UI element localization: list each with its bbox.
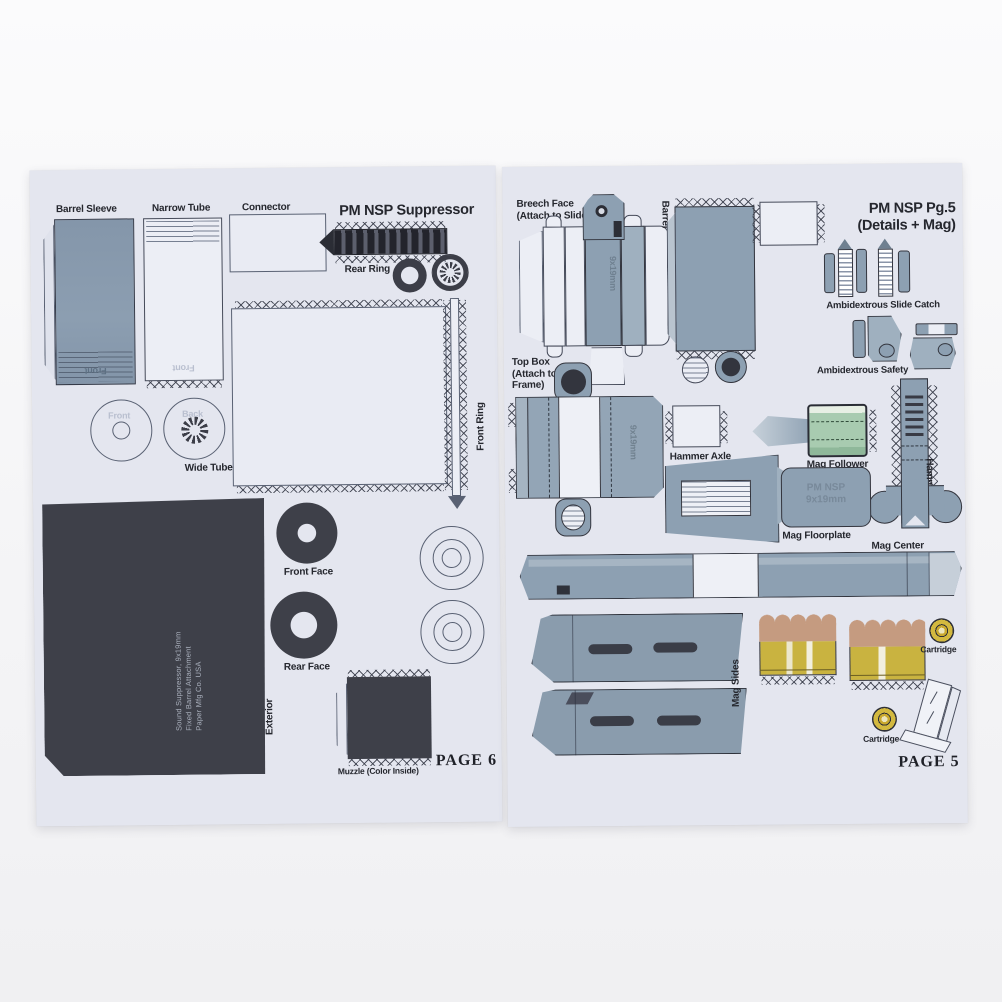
wide-tube-piece: [231, 306, 448, 486]
bullet-strip-a: [759, 611, 837, 690]
breech-slide-silhouette: [582, 194, 624, 240]
hammer-axle-piece: [672, 405, 720, 447]
safety-a-knob: [879, 344, 895, 358]
follower-dashdot-1: [811, 421, 863, 422]
catch-b-right: [898, 250, 910, 292]
top-box-dashdot-1: [548, 398, 550, 498]
mag-center-strip: [520, 551, 962, 600]
strip-b-zigzag: [852, 681, 924, 690]
follower-dashdot-2: [812, 439, 864, 440]
mag-side-piece-b: [532, 688, 748, 756]
floorplate-trapezoid: [665, 455, 780, 544]
muzzle-flap: [336, 683, 348, 755]
cartridge-b-label: Cartridge: [863, 735, 899, 745]
floorplate-marking-line1: PM NSP: [782, 482, 870, 495]
washer-outline-1: [419, 526, 484, 591]
page6-number: PAGE 6: [436, 752, 497, 771]
exterior-text-block: Sound Suppressor, 9x19mm Fixed Barrel At…: [172, 531, 204, 731]
breech-tab-t1: [546, 216, 562, 228]
right-sheet-page5: Breech Face (Attach to Slide) 9x19mm Bar…: [502, 163, 968, 827]
top-box-label-line1: Top Box: [512, 357, 557, 369]
safety-label: Ambidextrous Safety: [817, 365, 908, 377]
rear-ring-gear: [431, 254, 468, 291]
front-cap-circle: Front: [90, 399, 153, 462]
barrel-sleeve-flap: [43, 224, 56, 380]
mag-center-end-face: [930, 553, 961, 595]
mag-side-piece-a: [531, 613, 744, 683]
narrow-tube-label: Narrow Tube: [152, 203, 210, 215]
breech-panel-2: [565, 226, 586, 346]
dark-ring-circle: [715, 351, 747, 383]
tube-front-marking: Front: [173, 363, 195, 374]
mag-follower-arrow: [752, 414, 814, 448]
breech-slide-ring: [595, 205, 607, 217]
catch-a-right: [856, 249, 867, 293]
tube-wave-texture: [146, 220, 219, 245]
slide-catch-piece-b: [874, 244, 918, 299]
rear-face-label: Rear Face: [284, 661, 330, 673]
floorplate-wavy-window: [681, 480, 751, 517]
cartridge-base-b: [872, 707, 897, 732]
breech-caliber-marking: 9x19mm: [608, 256, 619, 291]
hammer-dashdot-1: [902, 445, 928, 446]
strip-a-tips: [759, 611, 836, 642]
barrel-sleeve-label: Barrel Sleeve: [56, 204, 117, 216]
top-box-label-line3: Frame): [512, 380, 557, 392]
mag-center-wavy-band: [693, 554, 759, 598]
front-ring-zigzag-right: [459, 300, 468, 490]
mag-sides-label: Mag Sides: [730, 659, 742, 707]
top-box-bottom-tab: [555, 498, 591, 536]
rear-ring-strip-arrow: [319, 229, 333, 255]
front-cap-label: Front: [108, 410, 130, 421]
top-box-bottom-oval: [561, 504, 585, 530]
side-b-slot-2: [657, 715, 701, 725]
cartridge-base-a: [929, 618, 954, 643]
page6-title: PM NSP Suppressor: [314, 202, 474, 220]
washer2-hole: [442, 622, 462, 642]
top-box-zz-b: [509, 469, 516, 493]
mag-center-label: Mag Center: [871, 540, 924, 552]
hammer-serrations: [905, 395, 923, 437]
side-a-slot-1: [588, 644, 632, 654]
hammer-axle-zz-right: [720, 411, 727, 443]
side-b-tab: [566, 692, 594, 704]
strip-a-zigzag: [762, 676, 835, 685]
narrow-tube-zigzag: [147, 380, 222, 388]
safety-b-top: [916, 323, 958, 335]
muzzle-piece: [347, 676, 432, 759]
breech-slide-notch: [614, 221, 622, 237]
rear-ring-gear-hole: [446, 268, 455, 277]
mag-follower-piece: [807, 404, 867, 458]
slide-catch-piece-a: [824, 245, 870, 300]
catch-b-coil: [878, 249, 893, 297]
bullet-strip-b: [849, 616, 926, 695]
safety-piece-a: [852, 316, 904, 366]
rear-ring-plain: [393, 258, 427, 292]
back-cap-gear-hole: [189, 425, 200, 436]
breech-tab-t2: [624, 215, 642, 227]
front-cap-hole: [112, 421, 130, 439]
back-cap-circle: Back: [163, 397, 226, 460]
front-face-piece: [276, 502, 338, 564]
safety-a-bar: [852, 320, 865, 358]
top-box-left-flap: [516, 398, 529, 498]
connector-piece: [229, 213, 327, 272]
rear-face-piece: [270, 591, 338, 659]
barrel-sleeve-piece: Front: [54, 218, 136, 385]
rear-ring-strip: [333, 228, 447, 255]
mag-follower-zz: [869, 410, 876, 452]
catch-a-coil: [838, 249, 853, 297]
top-box-label: Top Box (Attach to Frame): [512, 357, 557, 392]
washer1-hole: [442, 548, 462, 568]
top-box-label-line2: (Attach to: [512, 368, 557, 380]
safety-piece-b: [908, 323, 962, 371]
catch-b-tip: [878, 239, 892, 249]
top-box-zz-a: [508, 403, 515, 427]
top-box-body: 9x19mm: [515, 396, 664, 499]
cartridge-a-label: Cartridge: [920, 645, 956, 655]
barrel-piece: [674, 206, 755, 352]
exterior-piece: Sound Suppressor, 9x19mm Fixed Barrel At…: [42, 498, 267, 776]
strip-b-tips: [849, 616, 925, 647]
top-box-attach-circle: [561, 369, 586, 394]
wide-tube-zigzag-bottom: [237, 484, 444, 493]
page5-title-line2: (Details + Mag): [796, 217, 956, 234]
narrow-tube-piece: Front: [143, 217, 224, 381]
mag-floorplate-label: Mag Floorplate: [782, 530, 850, 542]
breech-tab-b2: [625, 345, 643, 357]
breech-panel-4: [621, 226, 646, 346]
page5-number: PAGE 5: [898, 753, 959, 772]
rear-ring-label: Rear Ring: [345, 264, 391, 276]
catch-a-tip: [838, 239, 852, 249]
top-box-caliber-marking: 9x19mm: [628, 425, 639, 460]
exterior-label: Exterior: [264, 699, 276, 735]
hammer-spur-notch: [905, 515, 925, 525]
wavy-circle: [682, 356, 709, 383]
mag-center-notch: [557, 585, 570, 594]
floorplate-marking-line2: 9x19mm: [782, 494, 870, 507]
barrel-flap: [667, 213, 677, 345]
wide-tube-label: Wide Tube: [185, 462, 233, 474]
breech-flap-left: [519, 231, 544, 343]
top-box-dashdot-2: [610, 397, 612, 497]
muzzle-label: Muzzle (Color Inside): [338, 766, 419, 777]
side-b-slot-1: [590, 716, 634, 726]
front-ring-arrow: [448, 496, 466, 509]
breech-panel-5: [645, 226, 670, 346]
side-a-fold: [572, 615, 574, 683]
floorplate-plate: PM NSP 9x19mm: [781, 467, 872, 528]
slide-catch-label: Ambidextrous Slide Catch: [826, 300, 940, 312]
breech-face-label-line1: Breech Face: [516, 198, 589, 210]
sleeve-front-marking: Front: [85, 366, 107, 377]
side-a-slot-2: [653, 642, 697, 652]
breech-panel-1: [543, 226, 566, 346]
exterior-text-line3: Paper Mfg Co. USA: [192, 531, 204, 731]
front-ring-label: Front Ring: [475, 402, 487, 451]
page5-title-line1: PM NSP Pg.5: [795, 200, 955, 217]
safety-b-knob: [938, 343, 953, 356]
catch-a-left: [824, 253, 835, 293]
photo-of-papercraft-sheets: Barrel Sleeve Front Narrow Tube Front Co…: [0, 0, 1002, 1002]
top-box-wavy-column: [558, 397, 601, 497]
rear-ring-zigzag-bottom: [335, 255, 445, 263]
left-sheet-page6: Barrel Sleeve Front Narrow Tube Front Co…: [30, 166, 503, 827]
breech-wavy-tab: [589, 347, 625, 385]
front-face-label: Front Face: [284, 566, 333, 578]
washer-outline-2: [420, 600, 485, 665]
connector-label: Connector: [242, 202, 290, 214]
